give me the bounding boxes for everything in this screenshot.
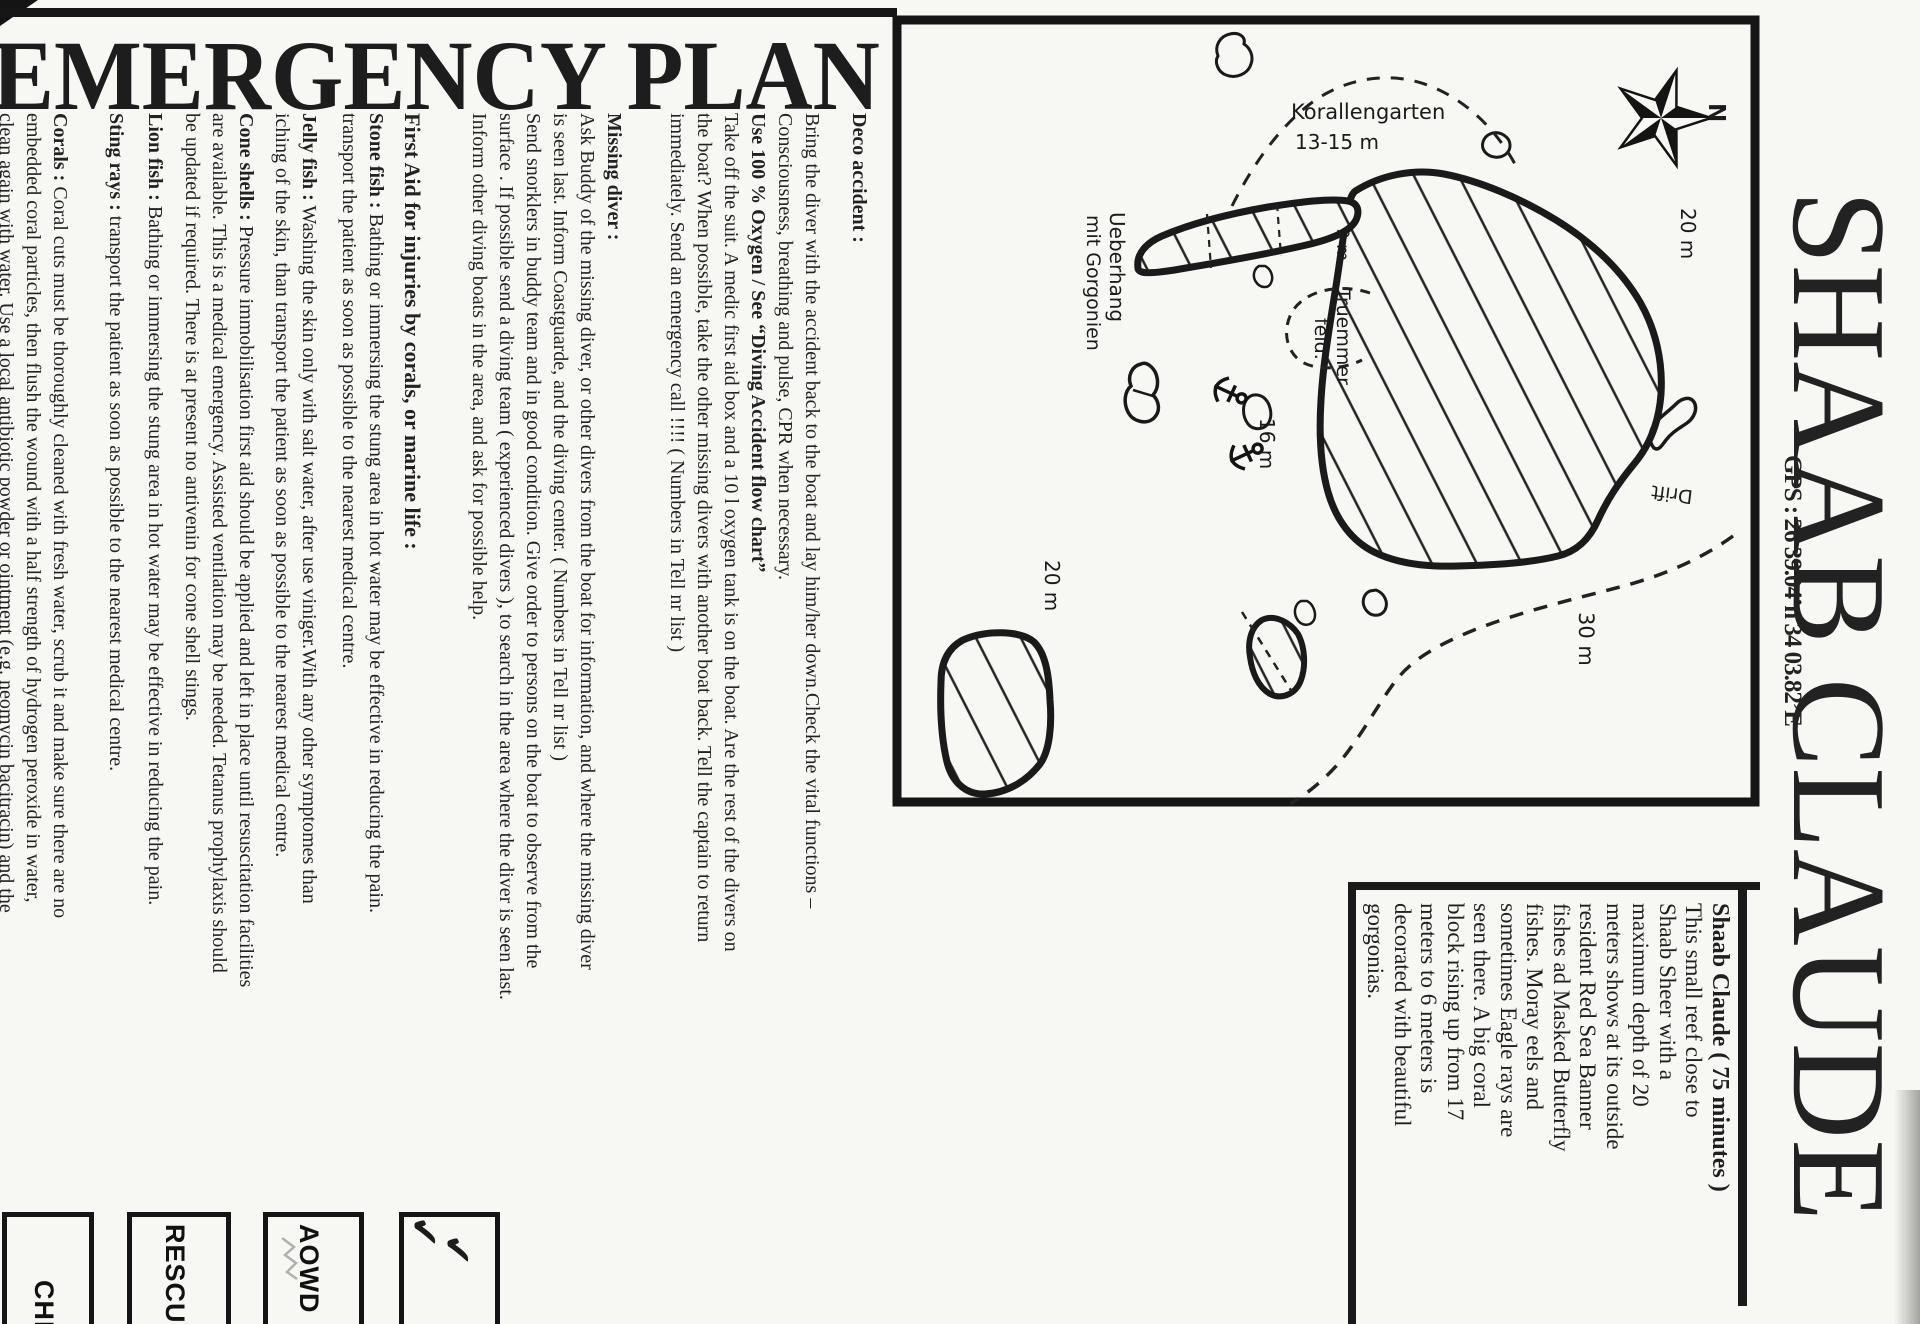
rescue-stamp-label: RESCUE (159, 1224, 190, 1324)
map-island-elongated (1138, 200, 1358, 273)
first-aid-item-sting-rays: Sting rays : transport the patient as so… (102, 113, 129, 1318)
map-coral-block (1242, 612, 1304, 696)
label-depth-20m-top: 20 m (1676, 208, 1700, 259)
map-island-main (1320, 172, 1661, 566)
reef-contour-30m (1290, 536, 1733, 804)
compass-north-label: N (1703, 103, 1729, 122)
description-box-border-left (1348, 882, 1356, 1324)
label-depth-30m: 30 m (1574, 612, 1598, 666)
compass-star-icon (1621, 71, 1711, 166)
first-aid-item-stone-fish: Stone fish : Bathing or immersing the st… (335, 113, 389, 1318)
first-aid-item-lion-fish: Lion fish : Bathing or immersing the stu… (141, 113, 168, 1318)
deco-accident-oxygen-line: Use 100 % Oxygen / See “Diving Accident … (744, 113, 771, 1318)
label-depth-9m: 9 m (1332, 228, 1352, 261)
map-rock-peanut (1125, 363, 1158, 421)
scan-edge-shadow (1894, 1090, 1920, 1324)
title-rule (0, 8, 897, 17)
map-rock-tiny-1 (1254, 266, 1272, 287)
site-description: Shaab Claude ( 75 minutes ) This small r… (1362, 903, 1733, 1273)
label-korallengarten-depth: 13-15 m (1295, 130, 1379, 154)
deco-accident-text-1: Bring the diver with the accident back t… (771, 113, 825, 1318)
deco-accident-text-2: Take off the suit. A medic first aid box… (663, 113, 744, 1318)
label-truemmer-feld: feld. (1310, 318, 1332, 360)
missing-diver-text: Ask Buddy of the missing diver, or other… (465, 113, 600, 1318)
first-aid-item-cone-shells: Cone shells : Pressure immobilisation fi… (178, 113, 259, 1318)
first-aid-item-jelly-fish: Jelly fish : Washing the skin only with … (268, 113, 322, 1318)
map-rock-small-3 (1363, 590, 1386, 615)
map-rock-tiny-2 (1295, 601, 1315, 625)
deco-accident-heading: Deco accident : (845, 113, 872, 1318)
scanned-dive-briefing-page: EMERGENCY PLAN Deco accident : Bring the… (0, 0, 1920, 1324)
label-korallengarten: Korallengarten (1291, 100, 1445, 124)
first-aid-item-corals: Corals : Coral cuts must be thoroughly c… (0, 113, 73, 1318)
site-gps-coordinates: GPS : 26 39.04’n 34 03.82’E (1778, 455, 1806, 726)
map-rock-top (1216, 33, 1252, 76)
description-box-border-top (1348, 882, 1760, 890)
first-aid-heading: First Aid for injuries by corals, or mar… (397, 113, 427, 1318)
missing-diver-heading: Missing diver : (600, 113, 627, 1318)
emergency-instructions: Deco accident : Bring the diver with the… (0, 113, 872, 1318)
label-depth-20m-left: 20 m (1040, 560, 1064, 611)
site-description-heading: Shaab Claude ( 75 minutes ) (1707, 903, 1734, 1273)
label-ueberhang: Ueberhang (1105, 212, 1129, 322)
check-stamp-label: CHECK (28, 1280, 59, 1324)
site-description-text: This small reef close to Shaab Sheer wit… (1362, 903, 1707, 1273)
label-mit-gorgonien: mit Gorgonien (1082, 215, 1104, 351)
aowd-stamp-label: AOWD (293, 1224, 324, 1313)
checkmark-icon: ✔ (435, 1234, 479, 1266)
label-truemmer: Truemmer (1332, 288, 1354, 385)
description-box-border-right (1738, 882, 1747, 1306)
label-depth-16m: 16 m (1255, 418, 1279, 469)
map-island-small-left (941, 633, 1051, 794)
